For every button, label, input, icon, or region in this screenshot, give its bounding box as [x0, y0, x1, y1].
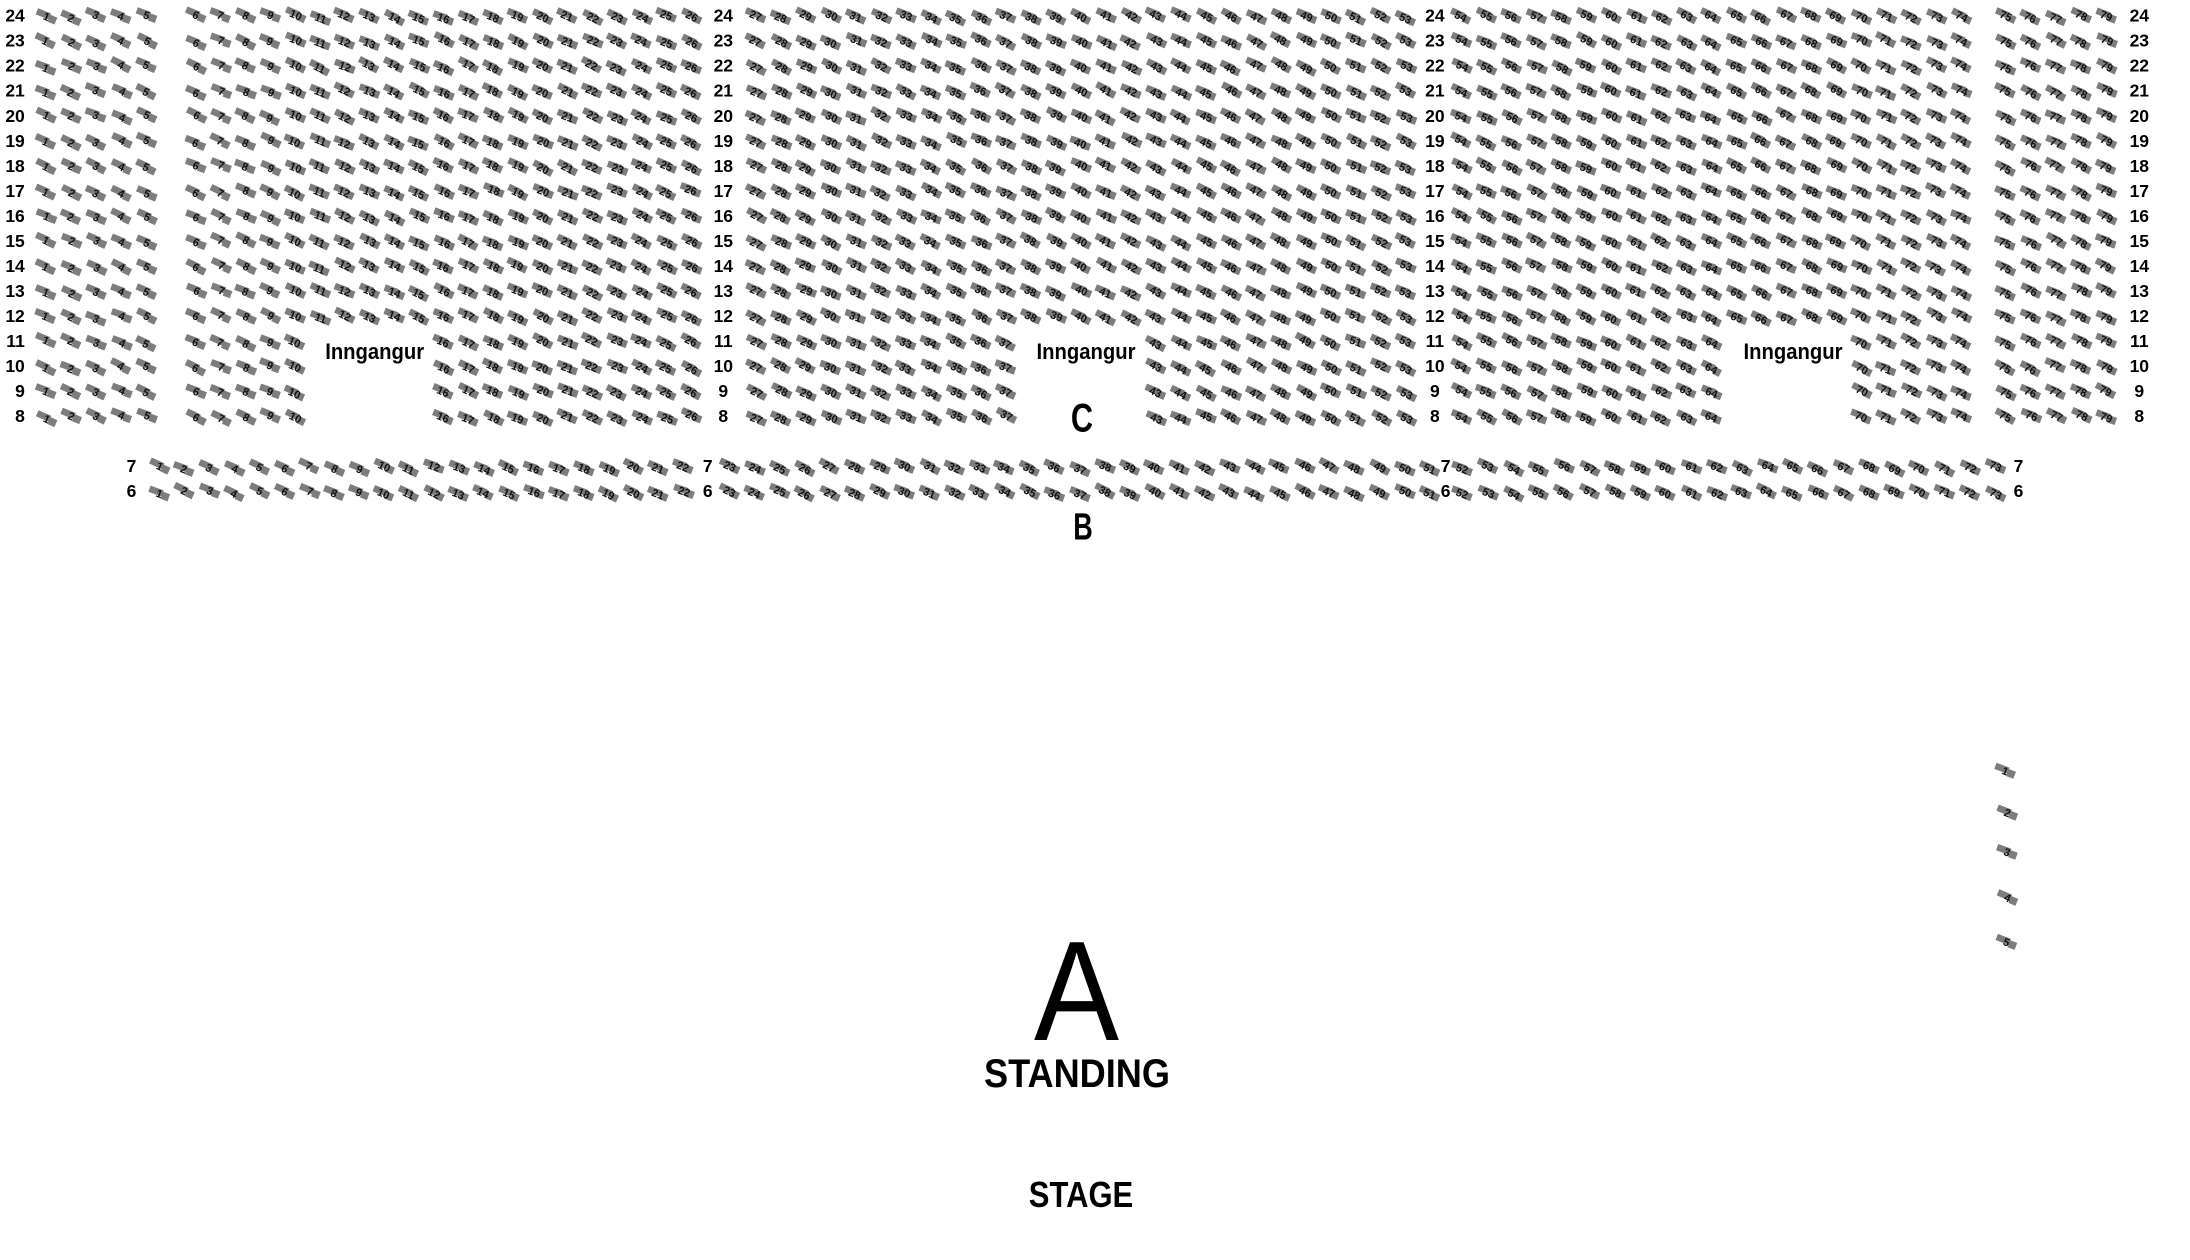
svg-text:Inngangur: Inngangur [1744, 339, 1843, 364]
svg-text:C: C [1071, 397, 1093, 441]
svg-text:20: 20 [2130, 106, 2150, 126]
svg-text:10: 10 [714, 356, 734, 376]
svg-text:8: 8 [2134, 406, 2144, 426]
svg-text:6: 6 [2014, 481, 2024, 501]
svg-text:21: 21 [5, 81, 25, 101]
svg-text:9: 9 [15, 381, 25, 401]
svg-text:8: 8 [15, 406, 25, 426]
svg-text:21: 21 [2130, 81, 2150, 101]
svg-text:8: 8 [718, 406, 728, 426]
svg-text:7: 7 [127, 456, 137, 476]
svg-text:21: 21 [714, 81, 734, 101]
svg-text:15: 15 [5, 231, 25, 251]
svg-text:15: 15 [2130, 231, 2150, 251]
svg-text:14: 14 [5, 256, 25, 276]
svg-text:19: 19 [714, 131, 734, 151]
svg-text:15: 15 [714, 231, 734, 251]
svg-text:11: 11 [6, 331, 25, 351]
svg-text:14: 14 [2130, 256, 2150, 276]
svg-text:15: 15 [1425, 231, 1445, 251]
svg-text:18: 18 [1425, 156, 1445, 176]
svg-text:23: 23 [714, 31, 734, 51]
svg-text:6: 6 [1441, 481, 1451, 501]
svg-text:12: 12 [5, 306, 25, 326]
svg-text:10: 10 [1425, 356, 1445, 376]
svg-text:22: 22 [714, 56, 734, 76]
svg-text:20: 20 [5, 106, 25, 126]
svg-text:22: 22 [2130, 56, 2150, 76]
svg-text:13: 13 [1425, 281, 1445, 301]
svg-text:18: 18 [5, 156, 25, 176]
svg-text:20: 20 [1425, 106, 1445, 126]
svg-text:12: 12 [1425, 306, 1445, 326]
svg-text:12: 12 [2130, 306, 2150, 326]
svg-text:13: 13 [2130, 281, 2150, 301]
svg-text:6: 6 [703, 481, 713, 501]
svg-text:13: 13 [5, 281, 25, 301]
svg-text:22: 22 [1425, 56, 1445, 76]
svg-text:24: 24 [5, 6, 25, 26]
svg-text:16: 16 [2130, 206, 2150, 226]
svg-text:A: A [1034, 912, 1119, 1071]
svg-text:8: 8 [1430, 406, 1440, 426]
svg-text:7: 7 [2014, 456, 2024, 476]
svg-text:24: 24 [1425, 6, 1445, 26]
svg-text:20: 20 [714, 106, 734, 126]
svg-text:10: 10 [5, 356, 25, 376]
svg-text:22: 22 [5, 56, 25, 76]
svg-text:17: 17 [5, 181, 24, 201]
svg-text:B: B [1073, 506, 1093, 548]
svg-text:11: 11 [1426, 331, 1445, 351]
svg-text:9: 9 [1430, 381, 1440, 401]
svg-text:16: 16 [714, 206, 734, 226]
svg-text:17: 17 [2130, 181, 2149, 201]
svg-text:23: 23 [2130, 31, 2150, 51]
svg-text:24: 24 [714, 6, 734, 26]
svg-text:7: 7 [1441, 456, 1451, 476]
svg-text:19: 19 [5, 131, 25, 151]
svg-text:11: 11 [714, 331, 733, 351]
svg-text:Inngangur: Inngangur [325, 339, 424, 364]
svg-text:12: 12 [714, 306, 734, 326]
svg-text:18: 18 [2130, 156, 2150, 176]
svg-text:19: 19 [2130, 131, 2150, 151]
svg-text:13: 13 [714, 281, 734, 301]
svg-text:10: 10 [2130, 356, 2150, 376]
svg-text:19: 19 [1425, 131, 1445, 151]
svg-text:16: 16 [5, 206, 25, 226]
svg-text:23: 23 [5, 31, 25, 51]
svg-text:17: 17 [714, 181, 733, 201]
svg-text:9: 9 [2134, 381, 2144, 401]
svg-text:16: 16 [1425, 206, 1445, 226]
svg-text:21: 21 [1425, 81, 1445, 101]
svg-text:18: 18 [714, 156, 734, 176]
svg-text:STAGE: STAGE [1029, 1174, 1133, 1215]
svg-text:23: 23 [1425, 31, 1445, 51]
svg-text:14: 14 [1425, 256, 1445, 276]
svg-text:9: 9 [718, 381, 728, 401]
svg-text:7: 7 [703, 456, 713, 476]
svg-text:11: 11 [2130, 331, 2149, 351]
svg-text:14: 14 [714, 256, 734, 276]
svg-text:17: 17 [1425, 181, 1444, 201]
svg-text:STANDING: STANDING [984, 1052, 1170, 1096]
svg-text:24: 24 [2130, 6, 2150, 26]
svg-text:Inngangur: Inngangur [1037, 339, 1136, 364]
svg-text:6: 6 [127, 481, 137, 501]
